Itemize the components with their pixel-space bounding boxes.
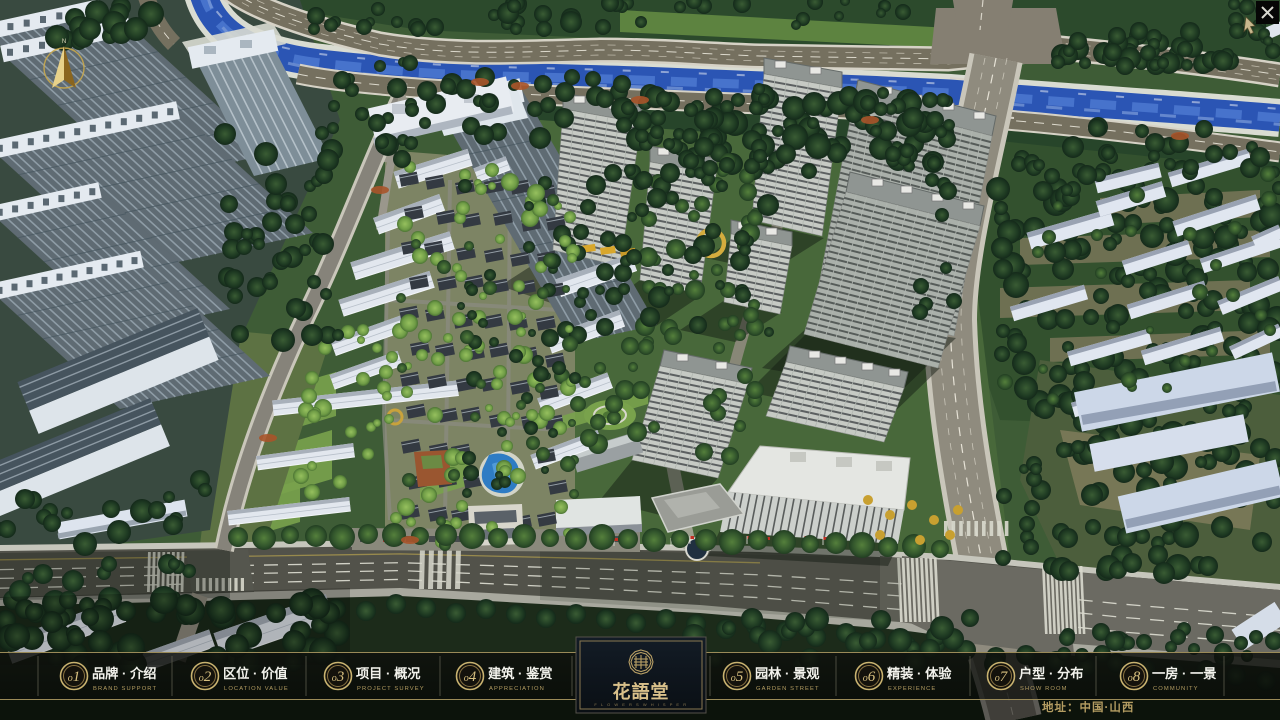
svg-text:BRAND SUPPORT: BRAND SUPPORT: [93, 686, 157, 692]
svg-text:地址：中国·山西: 地址：中国·山西: [1042, 700, 1134, 714]
svg-text:COMMUNITY: COMMUNITY: [1153, 686, 1199, 692]
svg-text:F L O W E R S W H I S P E R: F L O W E R S W H I S P E R: [594, 702, 687, 707]
svg-text:花語堂: 花語堂: [613, 681, 670, 702]
svg-text:SHOW ROOM: SHOW ROOM: [1020, 686, 1068, 692]
svg-text:建筑 · 鉴赏: 建筑 · 鉴赏: [488, 665, 552, 681]
svg-text:精装 · 体验: 精装 · 体验: [887, 665, 952, 681]
svg-text:户型 · 分布: 户型 · 分布: [1019, 665, 1083, 681]
svg-text:区位 · 价值: 区位 · 价值: [223, 665, 287, 681]
svg-text:EXPERIENCE: EXPERIENCE: [888, 686, 936, 692]
svg-text:园林 · 景观: 园林 · 景观: [755, 665, 820, 681]
svg-text:N: N: [62, 39, 66, 45]
svg-text:一房 · 一景: 一房 · 一景: [1152, 665, 1216, 681]
svg-text:PROJECT SURVEY: PROJECT SURVEY: [357, 686, 425, 692]
svg-text:品牌 · 介绍: 品牌 · 介绍: [92, 665, 156, 681]
svg-text:LOCATION VALUE: LOCATION VALUE: [224, 686, 289, 692]
svg-text:GARDEN STREET: GARDEN STREET: [756, 686, 820, 692]
svg-text:项目 · 概况: 项目 · 概况: [356, 665, 421, 681]
svg-text:APPRECIATION: APPRECIATION: [489, 686, 545, 692]
